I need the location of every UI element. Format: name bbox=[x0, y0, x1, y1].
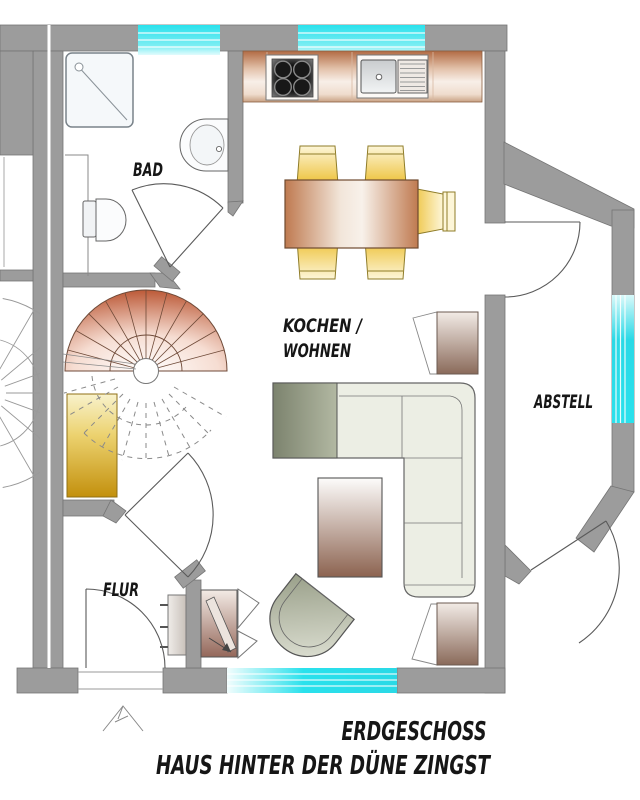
stove-icon bbox=[266, 55, 318, 100]
wall-bad-right-end bbox=[228, 201, 243, 216]
door-entrance bbox=[78, 589, 165, 689]
party-wall-seam bbox=[48, 25, 51, 668]
kitchen-sink-icon bbox=[357, 55, 428, 98]
dining-chair bbox=[365, 146, 406, 184]
floor-plan-canvas: BAD KOCHEN / WOHNEN ABSTELL FLUR ERDGESC… bbox=[0, 0, 640, 800]
sofa-dark-section bbox=[273, 383, 337, 458]
wall-tv-stub bbox=[186, 580, 201, 668]
wall-bad-right bbox=[228, 51, 243, 203]
coffee-table bbox=[318, 478, 382, 577]
title-line1: ERDGESCHOSS bbox=[342, 717, 487, 747]
armchair-bottom bbox=[412, 603, 478, 665]
lounge-chair bbox=[255, 574, 354, 672]
radiator-icon bbox=[160, 595, 186, 655]
wall-bottom-right bbox=[397, 668, 505, 693]
kitchen bbox=[243, 51, 482, 102]
window-top-kitchen bbox=[298, 25, 425, 55]
wall-top bbox=[0, 25, 507, 51]
dining-set bbox=[285, 146, 455, 279]
wall-abstell-left bbox=[485, 295, 505, 693]
label-abstell: ABSTELL bbox=[533, 391, 593, 413]
washbasin-icon bbox=[180, 119, 228, 171]
stove-tv-unit bbox=[160, 589, 259, 658]
wall-bad-bottom bbox=[63, 273, 155, 287]
wall-neighbor-inner bbox=[0, 270, 33, 281]
dining-chair bbox=[297, 146, 338, 184]
armchair-top bbox=[413, 312, 478, 374]
wardrobe-cabinet bbox=[67, 394, 117, 497]
door-exterior bbox=[531, 521, 619, 643]
title-line2: HAUS HINTER DER DÜNE ZINGST bbox=[156, 748, 492, 781]
label-flur: FLUR bbox=[103, 579, 139, 601]
label-wohnen: WOHNEN bbox=[283, 340, 351, 362]
toilet-icon bbox=[83, 199, 126, 241]
door-flur bbox=[125, 453, 213, 577]
wall-neighbor-block bbox=[0, 51, 33, 155]
window-bottom bbox=[227, 668, 397, 693]
entrance-threshold bbox=[78, 672, 163, 689]
wall-kitchen-right bbox=[485, 51, 505, 223]
dining-table bbox=[285, 180, 418, 248]
floor-plan-drawing: BAD KOCHEN / WOHNEN ABSTELL FLUR ERDGESC… bbox=[0, 0, 640, 800]
label-bad: BAD bbox=[133, 159, 163, 181]
wall-bottom-left bbox=[17, 668, 78, 693]
wall-stub-se-door bbox=[505, 545, 531, 584]
shower-icon bbox=[66, 53, 133, 127]
entrance-marker bbox=[103, 706, 143, 731]
window-top-left bbox=[138, 25, 220, 55]
wall-diagonal-bottomright bbox=[576, 486, 634, 552]
door-bad bbox=[132, 184, 223, 267]
window-right bbox=[612, 295, 634, 423]
wall-bottom-mid bbox=[163, 668, 227, 693]
label-kochen: KOCHEN / bbox=[283, 315, 364, 337]
door-abstell bbox=[505, 222, 580, 297]
